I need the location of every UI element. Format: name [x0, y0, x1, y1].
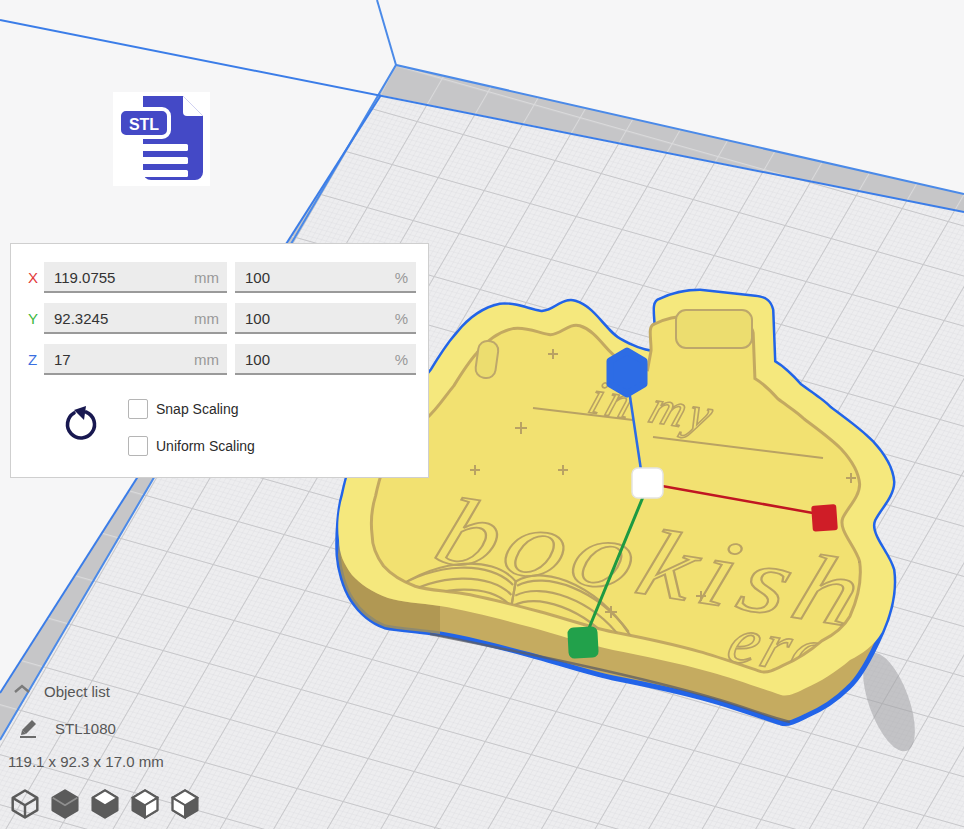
scale-row-x: X 119.0755 mm 100 %	[11, 262, 428, 293]
x-percent-input[interactable]: 100 %	[235, 262, 416, 293]
reset-scale-button[interactable]	[61, 406, 99, 446]
y-axis-label: Y	[28, 310, 42, 327]
snap-scaling-checkbox[interactable]	[128, 399, 148, 419]
center-scale-handle[interactable]	[632, 468, 663, 498]
z-axis-label: Z	[28, 351, 42, 368]
object-list-header[interactable]: Object list	[44, 683, 110, 700]
viewport-3d[interactable]: in my bookish era STL X	[0, 0, 964, 829]
stl-file-icon[interactable]: STL	[113, 92, 210, 186]
model-dimensions-label: 119.1 x 92.3 x 17.0 mm	[8, 753, 164, 770]
x-axis-label: X	[28, 269, 42, 286]
scale-tool-panel: X 119.0755 mm 100 % Y 92.3245 mm 100 %	[10, 243, 429, 478]
x-percent-unit: %	[395, 269, 408, 286]
y-percent-input[interactable]: 100 %	[235, 303, 416, 334]
z-percent-unit: %	[395, 351, 408, 368]
scale-row-z: Z 17 mm 100 %	[11, 344, 428, 375]
z-scale-handle[interactable]	[610, 351, 644, 394]
uniform-scaling-checkbox[interactable]	[128, 436, 148, 456]
y-mm-input[interactable]: 92.3245 mm	[44, 303, 227, 334]
object-list-item[interactable]: STL1080	[55, 720, 116, 737]
uniform-scaling-label: Uniform Scaling	[156, 438, 255, 454]
scale-row-y: Y 92.3245 mm 100 %	[11, 303, 428, 334]
z-mm-input[interactable]: 17 mm	[44, 344, 227, 375]
y-scale-handle[interactable]	[567, 626, 599, 659]
z-percent-input[interactable]: 100 %	[235, 344, 416, 375]
top-view-icon[interactable]	[90, 788, 120, 820]
tab-notch	[676, 310, 752, 348]
x-mm-input[interactable]: 119.0755 mm	[44, 262, 227, 293]
x-scale-handle[interactable]	[811, 504, 838, 532]
left-side-view-icon[interactable]	[130, 788, 160, 820]
x-mm-unit: mm	[194, 269, 219, 286]
y-percent-unit: %	[395, 310, 408, 327]
y-mm-unit: mm	[194, 310, 219, 327]
right-side-view-icon[interactable]	[170, 788, 200, 820]
snap-scaling-label: Snap Scaling	[156, 401, 239, 417]
3d-view-icon[interactable]	[10, 788, 40, 820]
chevron-up-icon[interactable]	[13, 684, 31, 694]
rim-slot	[474, 340, 499, 379]
camera-view-toolbar	[10, 788, 220, 822]
stl-badge-label: STL	[129, 116, 159, 133]
pencil-icon[interactable]	[17, 718, 39, 738]
z-mm-unit: mm	[194, 351, 219, 368]
front-view-icon[interactable]	[50, 788, 80, 820]
